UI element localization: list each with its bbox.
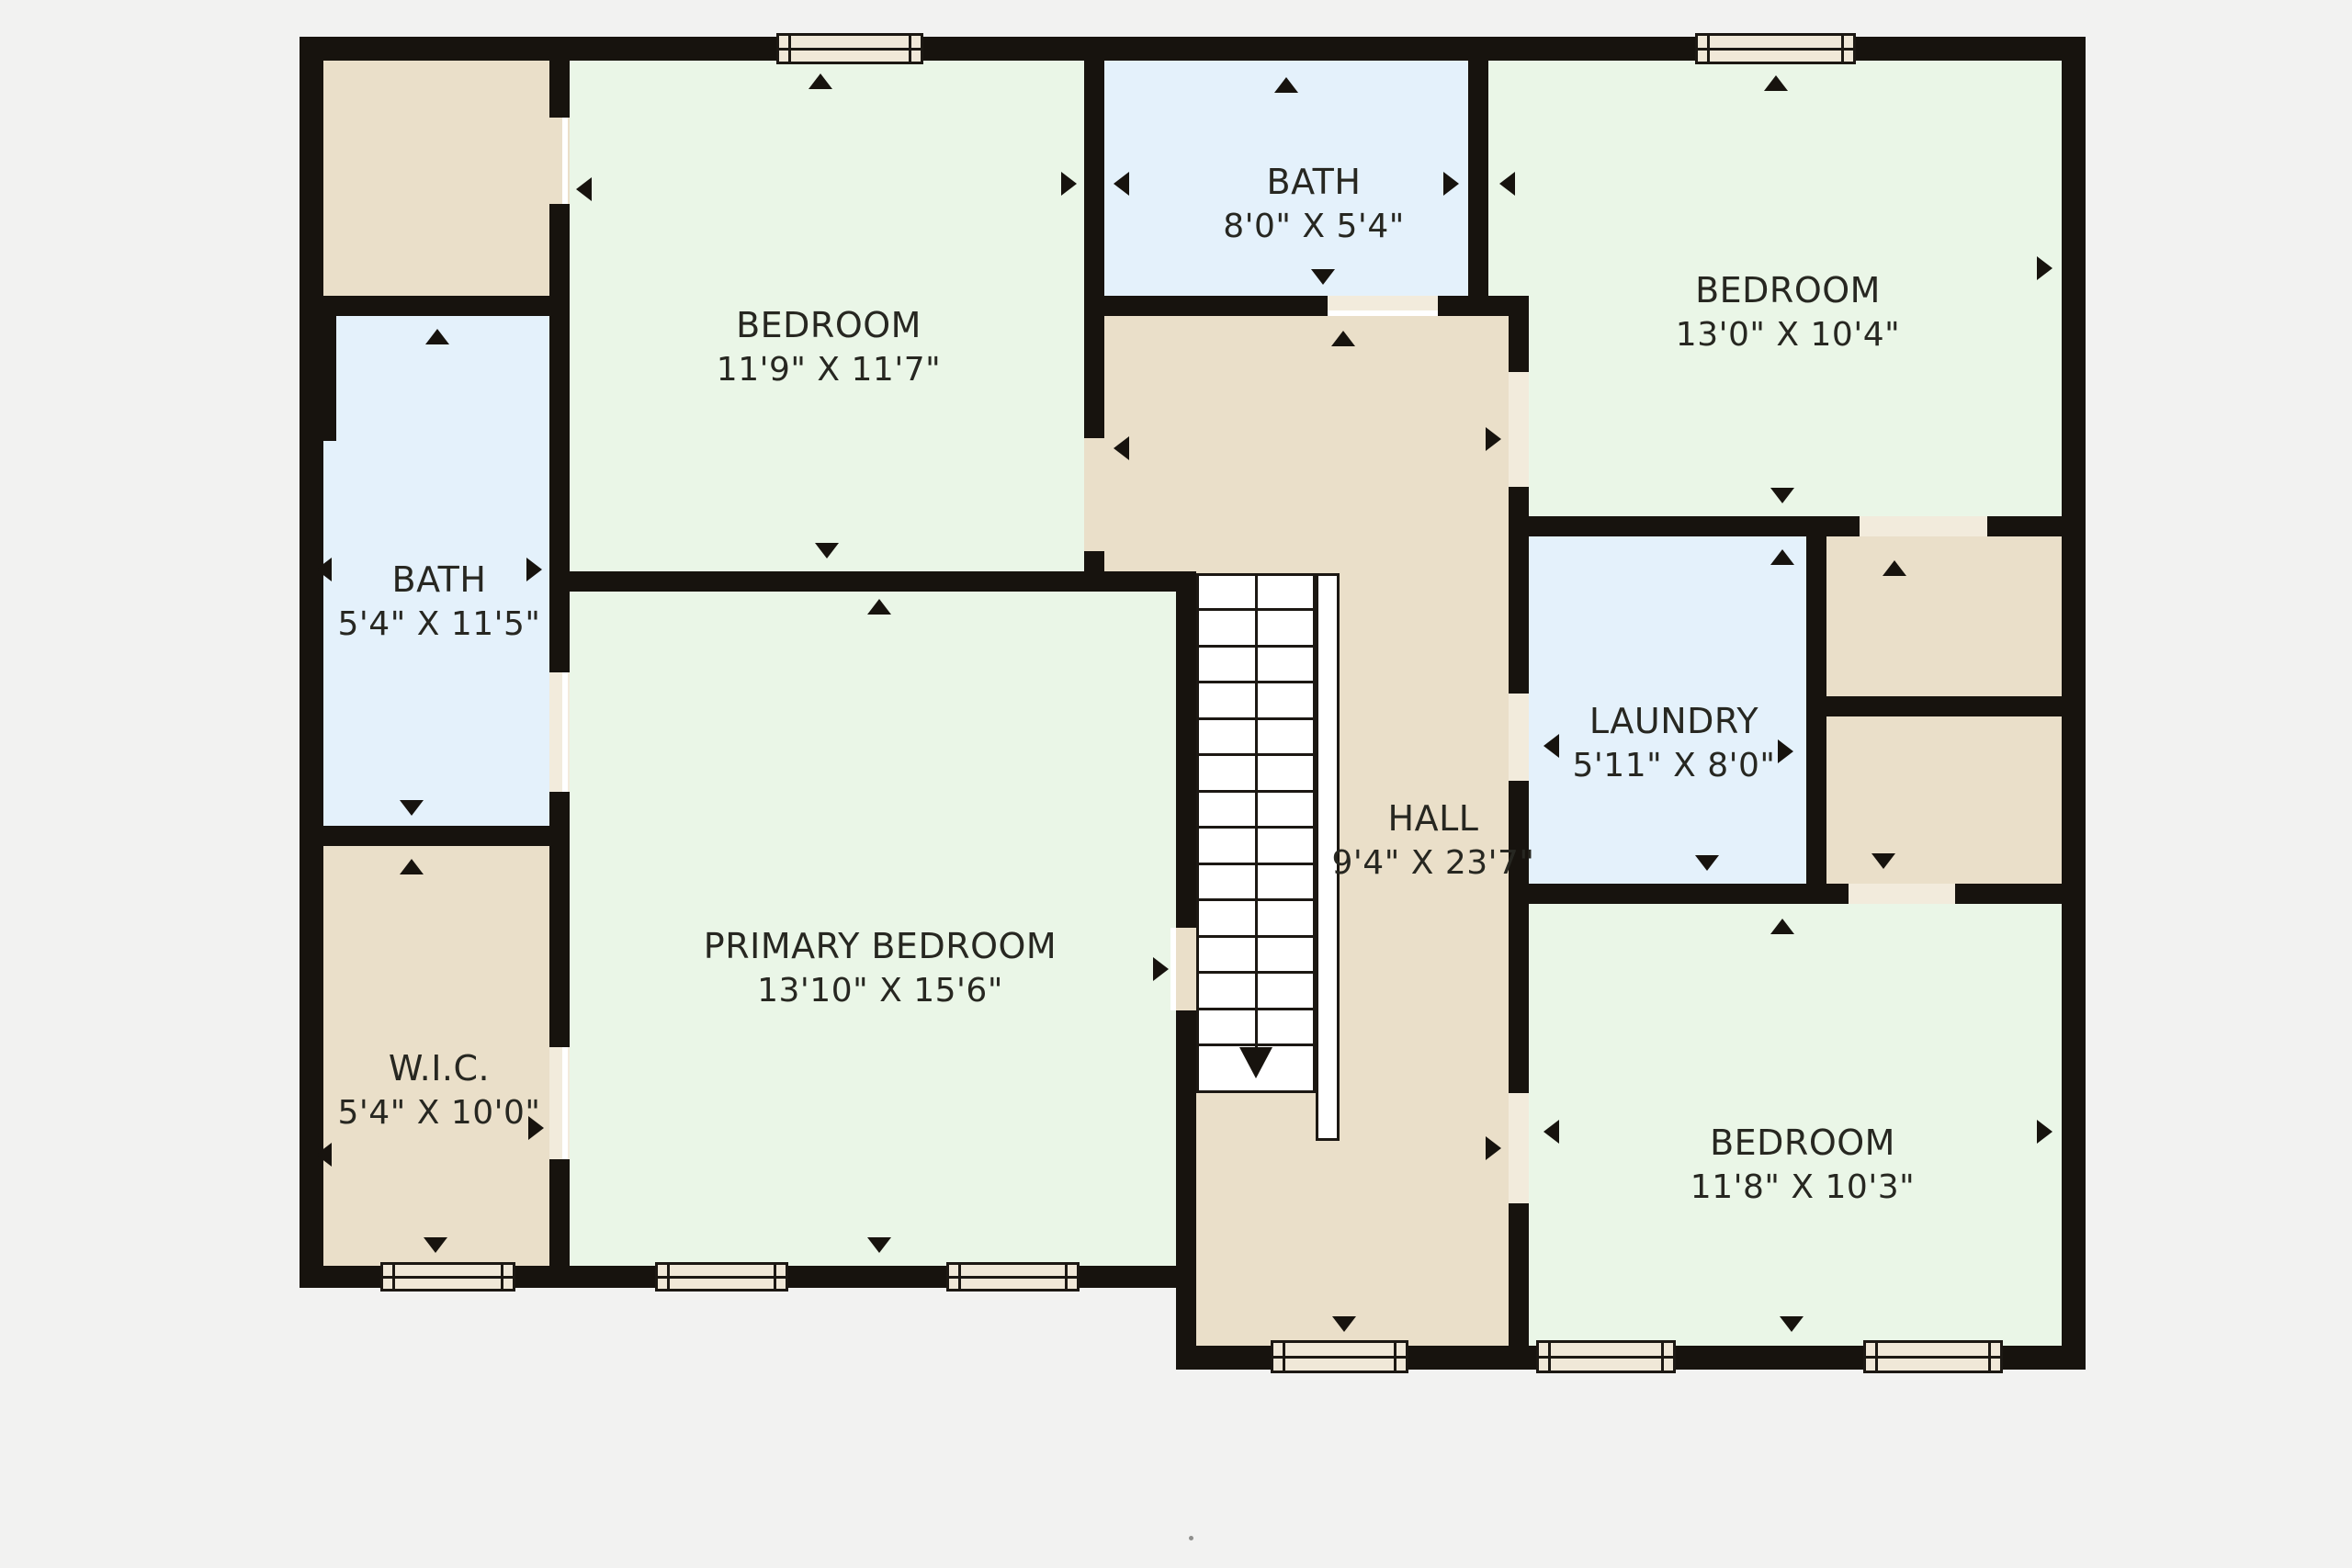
- window-pane-line: [779, 48, 921, 51]
- room-label-bedroom-2: BEDROOM 13'0" X 10'4": [1676, 267, 1900, 357]
- window: [1863, 1340, 2003, 1373]
- room-name: BATH: [338, 557, 541, 603]
- wall: [1987, 516, 2086, 536]
- opening-marker-down-icon: [400, 800, 424, 816]
- window-frame-line: [1283, 1343, 1285, 1371]
- room-dimensions: 5'4" X 11'5": [338, 603, 541, 647]
- wall: [1176, 571, 1196, 928]
- room-name: PRIMARY BEDROOM: [704, 923, 1057, 969]
- door-closet-right-1: [1860, 516, 1987, 536]
- opening-marker-up-icon: [425, 329, 449, 344]
- room-name: BEDROOM: [717, 302, 941, 348]
- floor-hall-upper: [1104, 316, 1509, 571]
- window-frame-line: [774, 1265, 776, 1289]
- opening-marker-down-icon: [1695, 855, 1719, 871]
- opening-marker-down-icon: [1311, 269, 1335, 285]
- wall: [1806, 536, 1826, 884]
- room-label-bath-top: BATH 8'0" X 5'4": [1223, 159, 1405, 249]
- opening-marker-left-icon: [316, 558, 332, 581]
- opening-marker-right-icon: [2037, 1120, 2052, 1144]
- wall: [1084, 551, 1104, 592]
- room-dimensions: 5'4" X 10'0": [338, 1091, 541, 1135]
- opening-marker-right-icon: [1486, 1136, 1501, 1160]
- room-name: BEDROOM: [1690, 1120, 1915, 1166]
- wall: [1509, 296, 1529, 372]
- window: [380, 1262, 515, 1292]
- opening-marker-left-icon: [1114, 172, 1129, 196]
- floor-closet-right-2: [1826, 716, 2062, 884]
- opening-marker-down-icon: [1770, 488, 1794, 503]
- room-dimensions: 8'0" X 5'4": [1223, 205, 1405, 249]
- opening-marker-down-icon: [867, 1237, 891, 1253]
- window-pane-line: [1539, 1356, 1673, 1359]
- floor-closet-top-left: [323, 61, 549, 296]
- room-label-bedroom-1: BEDROOM 11'9" X 11'7": [717, 302, 941, 392]
- room-name: W.I.C.: [338, 1045, 541, 1091]
- room-dimensions: 13'10" X 15'6": [704, 969, 1057, 1013]
- opening-marker-left-icon: [1114, 436, 1129, 460]
- window-frame-line: [909, 36, 911, 62]
- room-label-primary-bedroom: PRIMARY BEDROOM 13'10" X 15'6": [704, 923, 1057, 1013]
- door-bath-left-leaf: [562, 672, 568, 792]
- door-wic-leaf: [562, 1047, 568, 1159]
- room-name: BEDROOM: [1676, 267, 1900, 313]
- wall: [549, 61, 570, 118]
- window: [946, 1262, 1080, 1292]
- opening-marker-up-icon: [1883, 560, 1906, 576]
- window-frame-line: [958, 1265, 961, 1289]
- opening-marker-left-icon: [576, 177, 592, 201]
- window-frame-line: [1661, 1343, 1664, 1371]
- opening-marker-left-icon: [1499, 172, 1515, 196]
- opening-marker-up-icon: [1331, 331, 1355, 346]
- wall: [300, 296, 570, 316]
- room-label-hall: HALL 9'4" X 23'7": [1332, 795, 1535, 886]
- wall: [1176, 1010, 1196, 1266]
- opening-marker-left-icon: [1543, 734, 1559, 758]
- opening-marker-up-icon: [808, 73, 832, 89]
- room-label-wic: W.I.C. 5'4" X 10'0": [338, 1045, 541, 1135]
- door-primary-leaf: [1170, 928, 1176, 1010]
- wall: [549, 204, 570, 672]
- window-frame-line: [501, 1265, 503, 1289]
- opening-marker-down-icon: [815, 543, 839, 558]
- wall: [1509, 1203, 1529, 1346]
- opening-marker-up-icon: [400, 859, 424, 874]
- opening-marker-up-icon: [1770, 549, 1794, 565]
- window-frame-line: [1841, 36, 1844, 62]
- window-pane-line: [1273, 1356, 1406, 1359]
- room-name: HALL: [1332, 795, 1535, 841]
- window-frame-line: [392, 1265, 395, 1289]
- room-label-bedroom-3: BEDROOM 11'8" X 10'3": [1690, 1120, 1915, 1210]
- stair-down-arrow-icon: [1239, 1047, 1272, 1078]
- page-dot: [1189, 1536, 1193, 1540]
- window-frame-line: [667, 1265, 670, 1289]
- wall: [549, 792, 570, 1047]
- wall: [300, 826, 570, 846]
- opening-marker-up-icon: [1764, 75, 1788, 91]
- door-primary: [1176, 928, 1196, 1010]
- opening-marker-right-icon: [1443, 172, 1459, 196]
- wall: [1955, 884, 2086, 904]
- wall: [1826, 696, 2086, 716]
- opening-marker-down-icon: [424, 1237, 447, 1253]
- door-laundry: [1509, 694, 1529, 781]
- window-pane-line: [949, 1276, 1077, 1279]
- window: [1271, 1340, 1408, 1373]
- opening-marker-down-icon: [1871, 853, 1895, 869]
- window-pane-line: [658, 1276, 786, 1279]
- room-dimensions: 11'9" X 11'7": [717, 348, 941, 392]
- opening-marker-left-icon: [316, 1143, 332, 1167]
- room-dimensions: 5'11" X 8'0": [1573, 744, 1776, 788]
- opening-marker-right-icon: [1486, 427, 1501, 451]
- floor-closet-right-1: [1826, 536, 2062, 696]
- door-bedroom-1: [1084, 438, 1104, 551]
- opening-marker-right-icon: [2037, 256, 2052, 280]
- wall: [1176, 1266, 1196, 1370]
- window-frame-line: [1065, 1265, 1068, 1289]
- window: [655, 1262, 788, 1292]
- opening-marker-down-icon: [1332, 1316, 1356, 1332]
- window-frame-line: [788, 36, 791, 62]
- room-dimensions: 13'0" X 10'4": [1676, 313, 1900, 357]
- opening-marker-up-icon: [1770, 919, 1794, 934]
- opening-marker-up-icon: [1274, 77, 1298, 93]
- stair-direction-line: [1255, 573, 1258, 1047]
- window: [776, 33, 923, 64]
- window: [1536, 1340, 1676, 1373]
- window-pane-line: [383, 1276, 513, 1279]
- room-label-bath-left: BATH 5'4" X 11'5": [338, 557, 541, 647]
- room-name: BATH: [1223, 159, 1405, 205]
- opening-marker-right-icon: [1153, 957, 1169, 981]
- opening-marker-right-icon: [1778, 739, 1793, 763]
- wall: [1509, 516, 1860, 536]
- opening-marker-up-icon: [867, 599, 891, 615]
- door-closet-top-left-leaf: [562, 118, 568, 204]
- window-frame-line: [1988, 1343, 1991, 1371]
- room-name: LAUNDRY: [1573, 698, 1776, 744]
- opening-marker-right-icon: [1061, 172, 1077, 196]
- window: [1695, 33, 1856, 64]
- door-bedroom-3: [1509, 1093, 1529, 1203]
- opening-marker-down-icon: [1780, 1316, 1804, 1332]
- wall: [323, 316, 336, 441]
- opening-marker-left-icon: [1543, 1120, 1559, 1144]
- room-dimensions: 9'4" X 23'7": [1332, 841, 1535, 886]
- window-pane-line: [1698, 48, 1853, 51]
- door-bath-top-leaf: [1328, 310, 1438, 316]
- window-frame-line: [1548, 1343, 1551, 1371]
- wall: [300, 37, 323, 1288]
- wall: [1509, 884, 1849, 904]
- window-pane-line: [1866, 1356, 2000, 1359]
- wall: [549, 1159, 570, 1266]
- door-closet-right-2: [1849, 884, 1955, 904]
- window-frame-line: [1394, 1343, 1396, 1371]
- room-label-laundry: LAUNDRY 5'11" X 8'0": [1573, 698, 1776, 788]
- wall: [1468, 37, 1488, 316]
- wall: [1084, 61, 1104, 438]
- window-frame-line: [1875, 1343, 1878, 1371]
- floor-plan-canvas: BEDROOM 11'9" X 11'7" BATH 8'0" X 5'4" B…: [0, 0, 2352, 1568]
- door-bedroom-2: [1509, 372, 1529, 487]
- window-frame-line: [1707, 36, 1710, 62]
- wall: [1084, 296, 1328, 316]
- room-dimensions: 11'8" X 10'3": [1690, 1166, 1915, 1210]
